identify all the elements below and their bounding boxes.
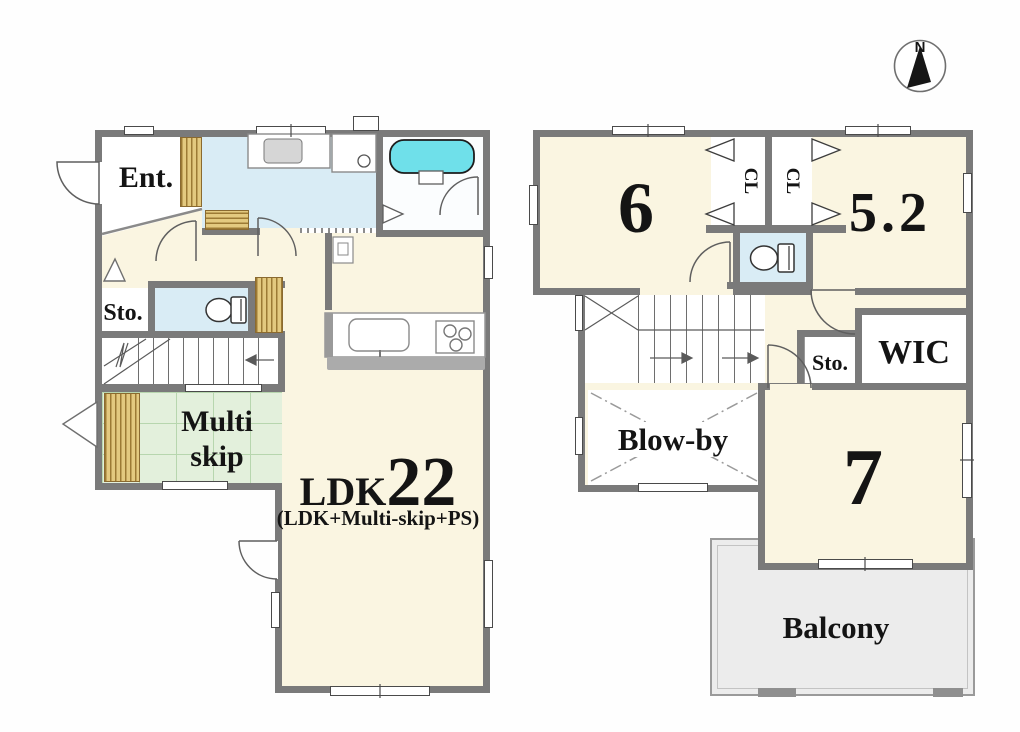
blowby-label: Blow-by xyxy=(592,424,754,455)
wall-segment xyxy=(376,230,483,237)
wall-segment xyxy=(733,233,740,289)
closet2-label: CL xyxy=(782,149,802,213)
opening xyxy=(185,384,262,392)
wall-segment xyxy=(765,137,772,232)
room6-label: 6 xyxy=(576,172,696,244)
wall-segment xyxy=(855,308,967,315)
wall-segment xyxy=(278,331,285,392)
window xyxy=(963,173,972,213)
wall-segment xyxy=(797,330,804,387)
floorplan-canvas: Ent. Sto. Multi skip LDK22 (LDK+Multi-sk… xyxy=(0,0,1020,732)
multi-skip-line1: Multi xyxy=(147,405,287,440)
vent-box xyxy=(353,116,379,131)
door-swing-icon xyxy=(63,402,97,447)
door-arc xyxy=(57,162,99,204)
window xyxy=(818,559,913,569)
wall-segment xyxy=(797,330,862,337)
wall-segment xyxy=(727,282,813,289)
wall-segment xyxy=(758,485,765,570)
window xyxy=(162,481,228,490)
room7-label: 7 xyxy=(803,438,923,518)
closet-cabinet-icon xyxy=(104,393,140,482)
window xyxy=(575,417,583,455)
wall-segment xyxy=(855,308,862,390)
door-opening xyxy=(770,384,812,390)
window xyxy=(124,126,154,135)
window xyxy=(330,686,430,696)
multi-skip-line2: skip xyxy=(147,440,287,475)
storage-1f-label: Sto. xyxy=(96,301,150,325)
room-toilet-2f xyxy=(740,233,806,282)
door-opening xyxy=(812,288,855,295)
window xyxy=(484,246,493,279)
balcony-support xyxy=(758,688,796,697)
stair-treads-2f xyxy=(638,295,764,383)
window xyxy=(484,560,493,628)
window xyxy=(638,483,708,492)
wall-segment xyxy=(325,232,332,310)
ldk-note: (LDK+Multi-skip+PS) xyxy=(268,508,488,529)
room-toilet-1f xyxy=(155,288,248,331)
window xyxy=(962,423,972,498)
half-wall-hatch xyxy=(300,228,376,233)
window xyxy=(845,126,911,135)
wic-label: WIC xyxy=(862,336,966,370)
wall-segment xyxy=(376,137,383,237)
door-opening xyxy=(270,541,278,579)
multi-skip-label: Multi skip xyxy=(147,405,287,474)
entrance-label: Ent. xyxy=(96,163,196,193)
closet1-label: CL xyxy=(740,149,760,213)
balcony-support xyxy=(933,688,963,697)
window xyxy=(529,185,538,225)
compass-north-label: N xyxy=(906,40,934,55)
wall-segment xyxy=(533,288,973,295)
blowby-text: Blow-by xyxy=(613,422,733,457)
window xyxy=(612,126,685,135)
door-opening xyxy=(640,288,733,295)
window xyxy=(271,592,280,628)
wall-segment xyxy=(806,233,813,289)
balcony-label: Balcony xyxy=(756,612,916,643)
storage-2f-label: Sto. xyxy=(804,352,856,374)
cabinet-icon xyxy=(255,277,283,333)
window xyxy=(256,126,326,135)
stair-treads-1f xyxy=(138,338,264,384)
cabinet-icon xyxy=(205,210,249,230)
room-bath xyxy=(383,137,483,230)
window xyxy=(575,295,583,331)
room52-label: 5.2 xyxy=(820,185,960,241)
